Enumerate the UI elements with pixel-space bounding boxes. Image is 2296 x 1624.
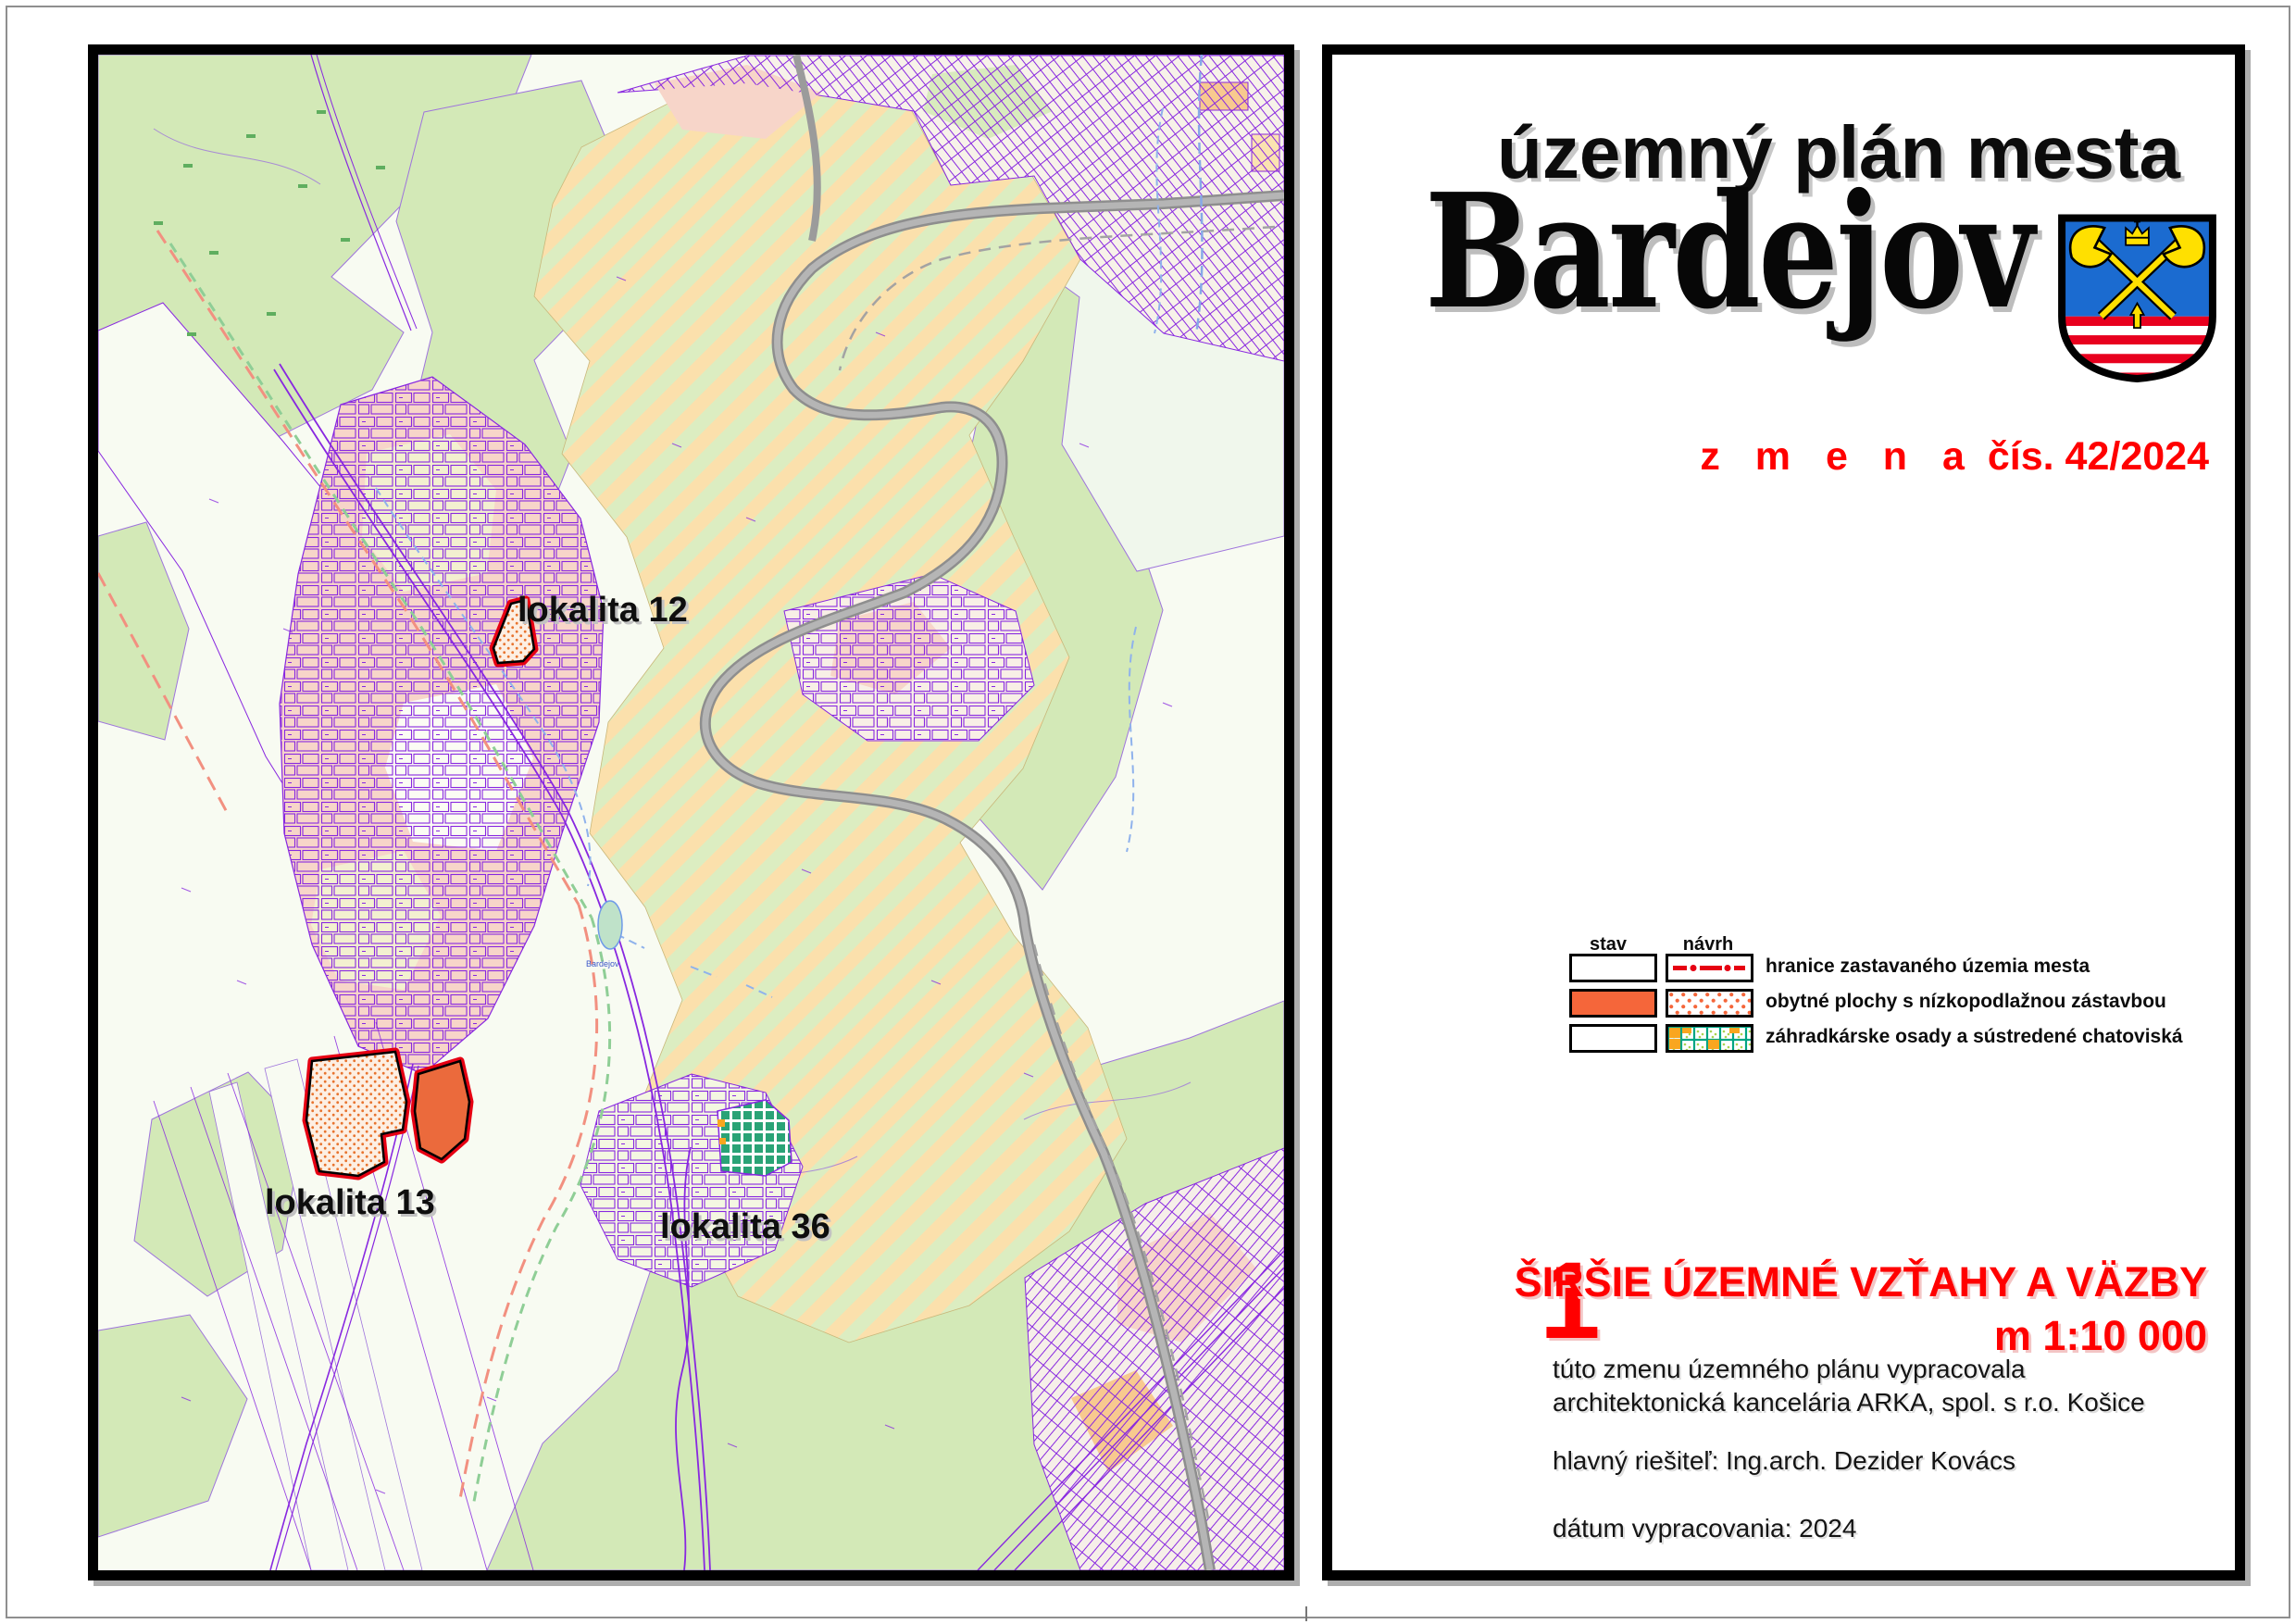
garden-grid-icon	[1668, 1027, 1751, 1050]
label-lokalita-12: lokalita 12	[518, 591, 688, 630]
legend-header-stav: stav	[1564, 934, 1653, 956]
locality-13-area	[306, 1052, 469, 1176]
legend-swatch-navrh-1	[1666, 954, 1753, 982]
map-panel: Bardejov lokalita 12 lokalita 12 lokalit…	[88, 44, 1294, 1580]
change-word: z m e n a	[1700, 434, 1977, 479]
title-block-panel: územný plán mesta Bardejov	[1322, 44, 2245, 1580]
boundary-dashdot-icon	[1668, 956, 1751, 980]
legend-label-3: záhradkárske osady a sústredené chatovis…	[1766, 1026, 2183, 1048]
pond	[598, 901, 622, 949]
change-value: čís. 42/2024	[1988, 434, 2209, 479]
legend-swatch-stav-2	[1569, 989, 1657, 1018]
legend-swatch-stav-3	[1569, 1024, 1657, 1053]
credit-chief-designer: hlavný riešiteľ: Ing.arch. Dezider Kovác…	[1553, 1446, 2015, 1476]
legend-header-navrh: návrh	[1664, 934, 1753, 956]
sheet-scale: m 1:10 000	[1994, 1312, 2207, 1360]
legend-swatch-navrh-3	[1666, 1024, 1753, 1053]
label-lokalita-13: lokalita 13	[265, 1183, 435, 1222]
label-lokalita-36: lokalita 36	[660, 1207, 830, 1246]
credit-prepared-by-intro: túto zmenu územného plánu vypracovala	[1553, 1355, 2026, 1384]
legend-label-2: obytné plochy s nízkopodlažnou zástavbou	[1766, 991, 2166, 1013]
crop-mark	[1305, 1606, 1307, 1621]
sheet-title: ŠIRŠIE ÚZEMNÉ VZŤAHY A VÄZBY	[1515, 1258, 2207, 1306]
city-name: Bardejov	[1425, 173, 2032, 331]
legend-swatch-stav-1	[1569, 954, 1657, 982]
map-canvas: Bardejov lokalita 12 lokalita 12 lokalit…	[98, 55, 1284, 1570]
legend-label-1: hranice zastavaného územia mesta	[1766, 956, 2090, 978]
legend-swatch-navrh-2	[1666, 989, 1753, 1018]
bardejov-coat-of-arms	[2055, 211, 2219, 382]
credit-date: dátum vypracovania: 2024	[1553, 1514, 1856, 1543]
dotted-residential-icon	[1668, 992, 1751, 1015]
plan-sheet: { "document": { "map": { "labels": { "lo…	[0, 0, 2296, 1624]
change-number-line: z m e n a čís. 42/2024	[1700, 434, 2209, 480]
credit-office: architektonická kancelária ARKA, spol. s…	[1553, 1388, 2145, 1418]
pond-label: Bardejov	[586, 959, 619, 968]
